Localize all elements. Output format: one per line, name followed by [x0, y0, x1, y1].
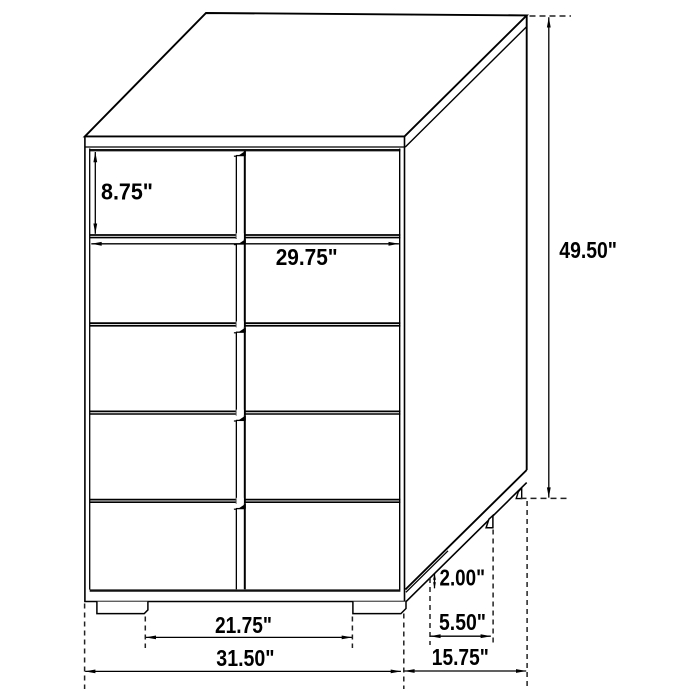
svg-text:29.75": 29.75" — [276, 244, 338, 270]
svg-text:21.75": 21.75" — [215, 612, 272, 638]
svg-text:15.75": 15.75" — [432, 644, 489, 670]
svg-text:5.50": 5.50" — [439, 609, 486, 635]
svg-text:2.00": 2.00" — [440, 565, 486, 591]
svg-text:49.50": 49.50" — [559, 237, 617, 263]
svg-text:8.75": 8.75" — [101, 178, 153, 204]
svg-text:31.50": 31.50" — [216, 645, 274, 671]
